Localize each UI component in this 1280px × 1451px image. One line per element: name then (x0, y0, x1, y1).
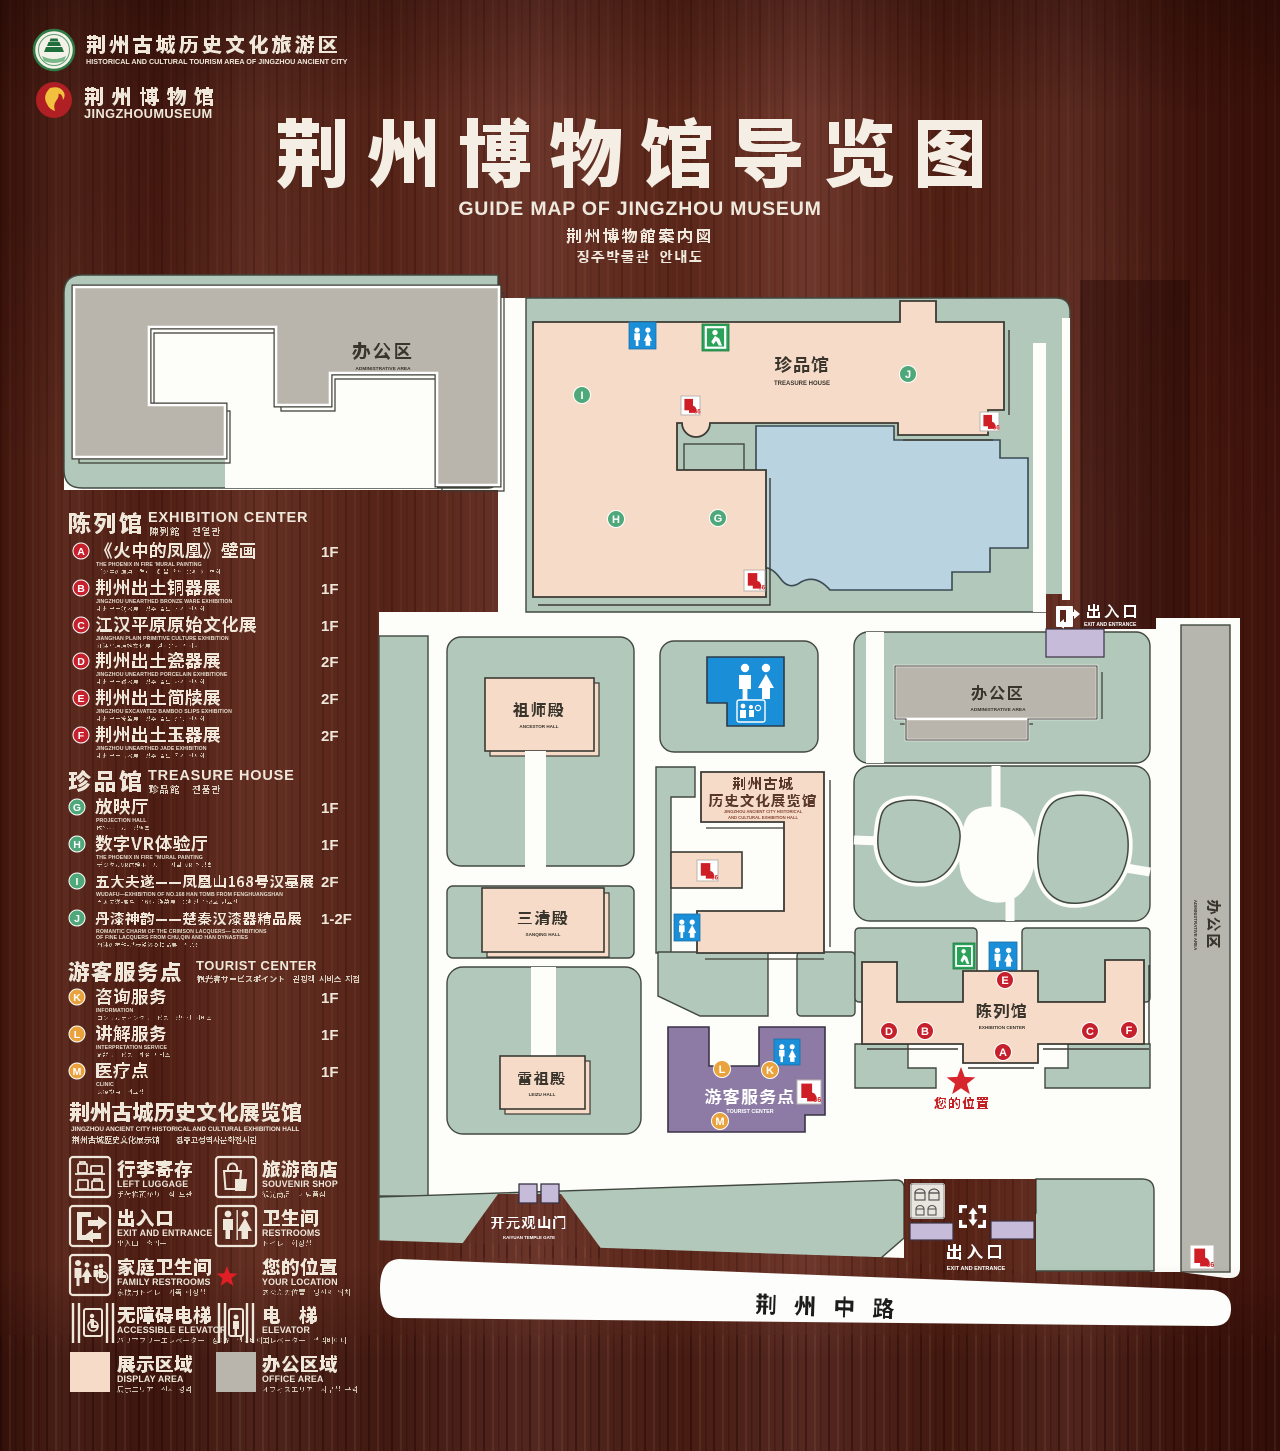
svg-text:JINGZHOU UNEARTHED PORCELAIN E: JINGZHOU UNEARTHED PORCELAIN EXHIBITIONE (96, 672, 228, 678)
svg-text:ADMINISTRATIVE AREA: ADMINISTRATIVE AREA (355, 366, 411, 372)
svg-text:THE PHOENIX IN FIRE 'MURAL PAI: THE PHOENIX IN FIRE 'MURAL PAINTING (96, 562, 202, 568)
svg-text:E: E (77, 693, 84, 705)
svg-text:EXIT AND ENTRANCE: EXIT AND ENTRANCE (1084, 622, 1137, 628)
svg-text:1F: 1F (321, 581, 339, 598)
svg-text:TOURIST CENTER: TOURIST CENTER (726, 1109, 773, 1115)
svg-text:EXHIBITION CENTER: EXHIBITION CENTER (979, 1025, 1026, 1030)
svg-text:LEFT LUGGAGE: LEFT LUGGAGE (117, 1179, 188, 1189)
svg-text:HISTORICAL AND CULTURAL TOURIS: HISTORICAL AND CULTURAL TOURISM AREA OF … (86, 57, 348, 66)
svg-text:K: K (766, 1065, 774, 1077)
svg-text:L: L (719, 1064, 726, 1076)
svg-text:66: 66 (813, 1097, 821, 1104)
svg-text:66: 66 (758, 585, 765, 591)
svg-text:FAMILY RESTROOMS: FAMILY RESTROOMS (117, 1277, 211, 1287)
svg-text:2F: 2F (321, 654, 339, 671)
svg-text:1F: 1F (321, 544, 339, 561)
svg-text:66: 66 (711, 875, 718, 881)
svg-text:JINGZHOU ANCIENT CITY HISTORIC: JINGZHOU ANCIENT CITY HISTORICAL (724, 809, 803, 814)
svg-text:66: 66 (1206, 1262, 1214, 1269)
svg-text:M: M (715, 1116, 724, 1128)
svg-text:CLINIC: CLINIC (96, 1082, 114, 1088)
svg-text:D: D (885, 1026, 893, 1038)
svg-text:JINGZHOUMUSEUM: JINGZHOUMUSEUM (84, 106, 213, 121)
svg-text:TREASURE HOUSE: TREASURE HOUSE (148, 768, 295, 784)
svg-text:ANCESTOR HALL: ANCESTOR HALL (519, 724, 558, 729)
svg-text:F: F (1126, 1025, 1133, 1037)
svg-text:D: D (77, 656, 85, 668)
svg-text:JINGZHOU ANCIENT CITY HISTORIC: JINGZHOU ANCIENT CITY HISTORICAL AND CUL… (71, 1126, 299, 1133)
svg-text:H: H (612, 514, 620, 526)
svg-text:J: J (905, 369, 911, 381)
svg-text:INTERPRETATION SERVICE: INTERPRETATION SERVICE (96, 1045, 168, 1051)
svg-text:2F: 2F (321, 874, 339, 891)
svg-text:OF FINE LACQUERS FROM CHU,QIN: OF FINE LACQUERS FROM CHU,QIN AND HAN DY… (96, 935, 249, 941)
svg-text:EXIT AND ENTRANCE: EXIT AND ENTRANCE (117, 1228, 212, 1238)
svg-text:JINGZHOU UNEARTHED BRONZE WARE: JINGZHOU UNEARTHED BRONZE WARE EXHIBITIO… (96, 599, 233, 605)
svg-text:AND CULTURAL EXHIBITION HALL: AND CULTURAL EXHIBITION HALL (728, 815, 799, 820)
svg-text:C: C (1086, 1026, 1094, 1038)
svg-text:1F: 1F (321, 990, 339, 1007)
svg-text:EXIT AND ENTRANCE: EXIT AND ENTRANCE (947, 1266, 1006, 1272)
svg-text:JINGZHOU EXCAVATED BAMBOO SLIP: JINGZHOU EXCAVATED BAMBOO SLIPS EXHIBITI… (96, 709, 232, 715)
svg-text:1F: 1F (321, 1064, 339, 1081)
svg-text:I: I (76, 876, 79, 888)
svg-text:B: B (921, 1026, 929, 1038)
svg-text:1F: 1F (321, 837, 339, 854)
svg-text:K: K (73, 992, 81, 1004)
svg-text:J: J (74, 913, 80, 925)
svg-text:GUIDE MAP OF JINGZHOU MUSEUM: GUIDE MAP OF JINGZHOU MUSEUM (458, 198, 821, 220)
svg-text:TREASURE HOUSE: TREASURE HOUSE (774, 381, 830, 387)
svg-text:ADMINISTRATIVE AREA: ADMINISTRATIVE AREA (970, 707, 1026, 713)
svg-text:G: G (714, 513, 723, 525)
svg-text:INFORMATION: INFORMATION (96, 1008, 133, 1014)
svg-text:OFFICE AREA: OFFICE AREA (262, 1374, 324, 1384)
svg-text:JIANGHAN PLAIN PRIMITIVE CULTU: JIANGHAN PLAIN PRIMITIVE CULTURE EXHIBIT… (96, 636, 229, 642)
svg-text:SOUVENIR SHOP: SOUVENIR SHOP (262, 1179, 338, 1189)
svg-text:EXHIBITION CENTER: EXHIBITION CENTER (148, 510, 308, 526)
svg-text:JINGZHOU UNEARTHED JADE EXHIBI: JINGZHOU UNEARTHED JADE EXHIBITION (96, 746, 207, 752)
svg-text:ADMINISTRATIVE AREA: ADMINISTRATIVE AREA (1193, 900, 1198, 951)
svg-text:2F: 2F (321, 728, 339, 745)
svg-text:I: I (580, 390, 583, 402)
svg-text:E: E (1001, 975, 1008, 987)
svg-text:A: A (77, 546, 85, 558)
svg-text:B: B (77, 583, 85, 595)
svg-text:DISPLAY AREA: DISPLAY AREA (117, 1374, 184, 1384)
svg-text:YOUR LOCATION: YOUR LOCATION (262, 1277, 338, 1287)
svg-text:PROJECTION HALL: PROJECTION HALL (96, 818, 147, 824)
svg-text:TOURIST CENTER: TOURIST CENTER (196, 958, 317, 973)
svg-text:KAIYUAN TEMPLE GATE: KAIYUAN TEMPLE GATE (503, 1235, 555, 1240)
svg-text:ELEVATOR: ELEVATOR (262, 1325, 310, 1335)
svg-text:1F: 1F (321, 800, 339, 817)
svg-text:THE PHOENIX IN FIRE "MURAL PAI: THE PHOENIX IN FIRE "MURAL PAINTING (96, 855, 203, 861)
svg-text:C: C (77, 620, 85, 632)
svg-text:L: L (74, 1029, 81, 1041)
svg-text:1F: 1F (321, 1027, 339, 1044)
svg-text:SANQING HALL: SANQING HALL (526, 932, 561, 937)
svg-text:H: H (73, 839, 81, 851)
svg-text:ACCESSIBLE ELEVATOR: ACCESSIBLE ELEVATOR (117, 1325, 227, 1335)
svg-text:F: F (78, 730, 85, 742)
svg-text:66: 66 (993, 426, 1000, 432)
svg-text:1-2F: 1-2F (321, 911, 352, 928)
svg-text:1F: 1F (321, 618, 339, 635)
svg-text:G: G (73, 802, 81, 814)
svg-text:RESTROOMS: RESTROOMS (262, 1228, 321, 1238)
svg-text:WUDAFU—EXHIBITION OF NO.168 HA: WUDAFU—EXHIBITION OF NO.168 HAN TOMB FRO… (96, 892, 283, 898)
svg-text:M: M (73, 1066, 82, 1078)
svg-text:A: A (999, 1047, 1007, 1059)
svg-text:LEIZU HALL: LEIZU HALL (529, 1092, 556, 1097)
svg-text:66: 66 (694, 410, 701, 416)
svg-text:2F: 2F (321, 691, 339, 708)
